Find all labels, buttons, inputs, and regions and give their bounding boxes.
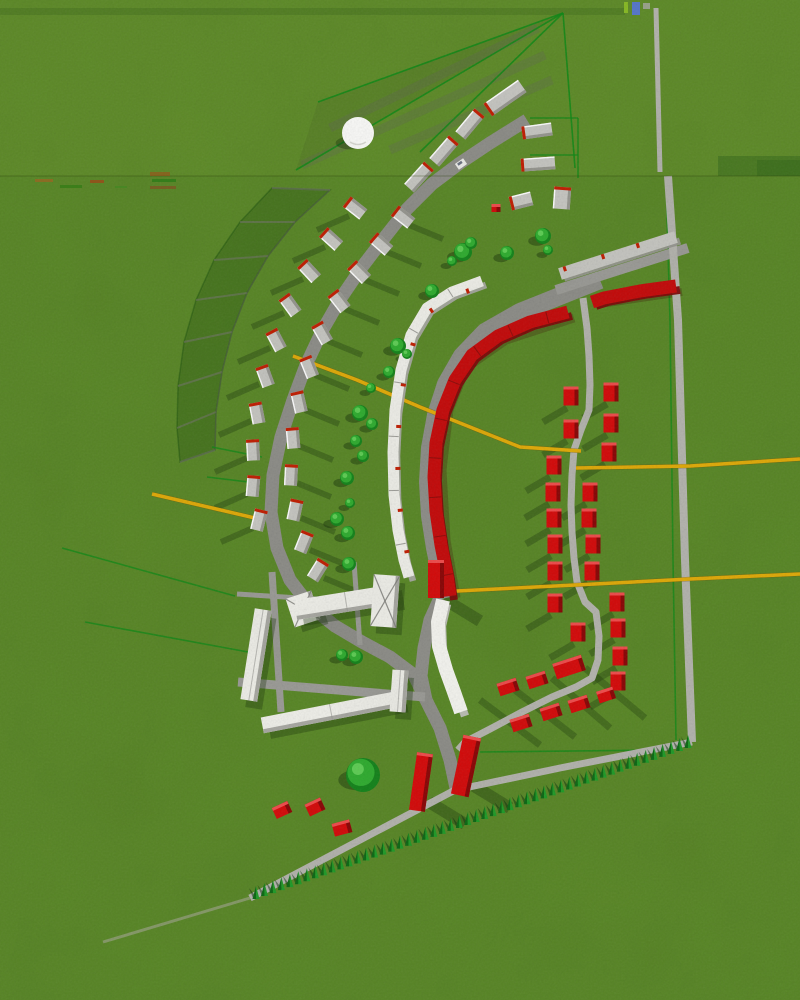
seam-noise-dash — [115, 186, 127, 188]
seam-noise-dash — [152, 179, 176, 182]
seam-noise-dash — [60, 185, 82, 188]
seam-noise-dash — [150, 172, 170, 176]
seam-noise-dash — [35, 179, 53, 182]
seam-noise-dash — [90, 180, 104, 183]
grass-mottle — [0, 0, 800, 1000]
seam-noise-dash — [150, 186, 176, 189]
site-plan-canvas — [0, 0, 800, 1000]
render-noise — [0, 0, 800, 1000]
site-plan-render — [0, 0, 800, 1000]
